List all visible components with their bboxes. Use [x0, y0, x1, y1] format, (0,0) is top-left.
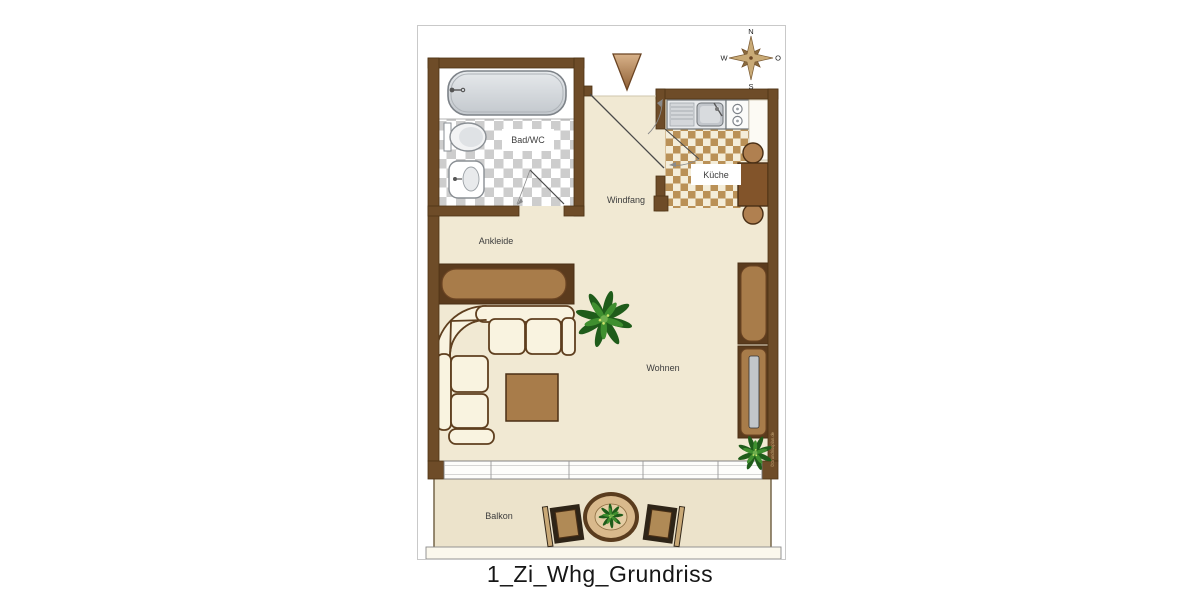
kitchen-label: Küche — [703, 170, 729, 180]
coffee-table — [506, 374, 558, 421]
kitchen-chair-bottom — [743, 204, 763, 224]
balcony-label: Balkon — [485, 511, 513, 521]
kitchen-chair-top — [743, 143, 763, 163]
window-band — [444, 461, 762, 479]
living-label: Wohnen — [646, 363, 679, 373]
dressing-label: Ankleide — [479, 236, 514, 246]
floorplan-image: N O S W Bad/WC Windfang Küche Ankleide W… — [0, 0, 1200, 600]
plan-title: 1_Zi_Whg_Grundriss — [0, 561, 1200, 588]
plan-svg: N O S W Bad/WC Windfang Küche Ankleide W… — [418, 26, 785, 559]
plan-page: N O S W Bad/WC Windfang Küche Ankleide W… — [417, 25, 786, 560]
bathtub — [448, 71, 566, 115]
toilet — [444, 123, 486, 151]
bidet — [449, 161, 484, 198]
compass-o-label: O — [775, 54, 781, 63]
sideboard — [738, 263, 769, 344]
watermark-text: ©Grundrissplan.de — [770, 431, 775, 467]
balcony-parapet — [426, 547, 781, 559]
tv-icon — [749, 356, 759, 428]
stove — [726, 100, 749, 129]
compass-rose-icon: N O S W — [720, 27, 781, 91]
bathroom-label: Bad/WC — [511, 135, 545, 145]
kitchen-table — [738, 163, 768, 206]
entrance-arrow-icon — [613, 54, 641, 90]
kitchen-sink — [667, 100, 726, 129]
tv-board — [738, 346, 769, 438]
compass-w-label: W — [720, 54, 728, 63]
kitchen-area — [665, 100, 768, 224]
compass-n-label: N — [748, 27, 753, 36]
vestibule-label: Windfang — [607, 195, 645, 205]
wardrobe — [434, 264, 574, 304]
compass-s-label: S — [748, 82, 753, 91]
